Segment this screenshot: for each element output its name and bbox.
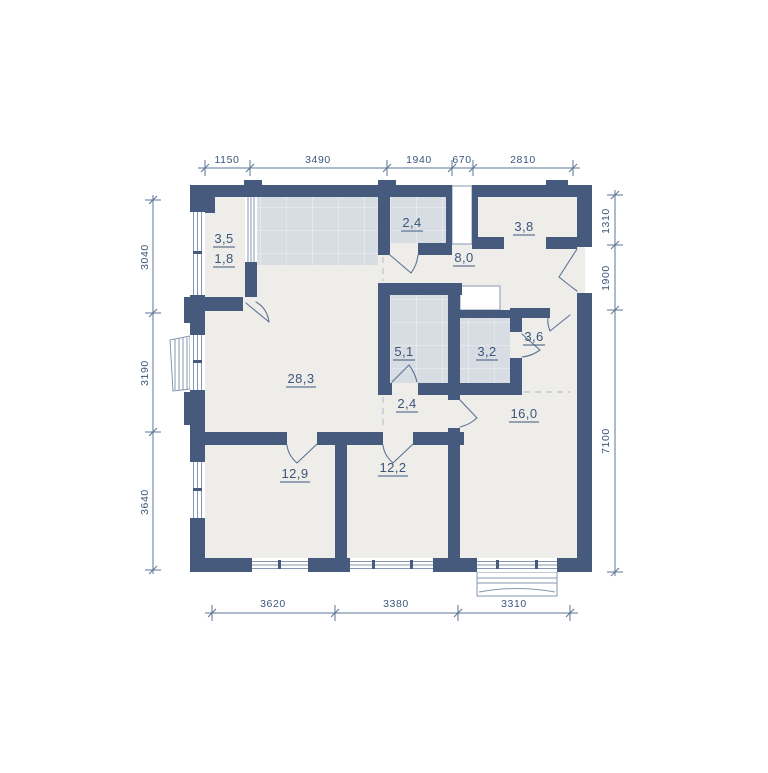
shaft-middle	[460, 286, 500, 310]
dim-top-2: 1940	[406, 154, 432, 166]
room-label-bedroom-left: 12,9	[282, 466, 309, 481]
dim-bottom-2: 3310	[501, 598, 527, 610]
dim-top-3: 670	[452, 154, 471, 166]
room-label-hallway: 8,0	[454, 250, 473, 265]
dim-left-1: 3190	[139, 360, 151, 386]
dimension-chain-left: 3040 3190 3640	[139, 195, 161, 574]
room-label-inner-hall: 2,4	[397, 396, 416, 411]
window-bottom-bedroom-left	[252, 558, 308, 572]
room-label-shower-room: 3,2	[477, 344, 496, 359]
balcony-left	[170, 336, 190, 391]
dim-top-0: 1150	[215, 154, 240, 166]
room-label-wc: 2,4	[402, 215, 421, 230]
room-label-loggia-reduced: 1,8	[214, 251, 233, 266]
dim-bottom-1: 3380	[383, 598, 409, 610]
dimension-chain-bottom: 3620 3380 3310	[205, 598, 578, 621]
dimension-chain-right: 1310 1900 7100	[600, 190, 623, 576]
shaft-top	[452, 186, 472, 244]
dimension-chain-top: 1150 3490 1940 670 2810	[198, 154, 580, 176]
window-left-bedroom	[190, 462, 205, 518]
dim-bottom-0: 3620	[260, 598, 286, 610]
window-left-loggia	[190, 212, 205, 295]
dim-right-2: 7100	[600, 428, 612, 454]
balcony-bottom	[477, 572, 557, 596]
floor-plan-canvas: 3,5 1,8 2,4 3,8 8,0 5,1 3,2 3,6 28,3 2,4…	[0, 0, 768, 768]
window-bottom-bedroom-right	[477, 558, 557, 572]
window-left-living	[190, 335, 205, 390]
dim-top-1: 3490	[305, 154, 331, 166]
tile-floor-bathroom	[390, 295, 448, 383]
tile-floor-kitchen	[250, 197, 378, 265]
room-label-bedroom-right: 16,0	[511, 406, 538, 421]
window-bottom-bedroom-middle	[350, 558, 433, 572]
floor-plan-page: 3,5 1,8 2,4 3,8 8,0 5,1 3,2 3,6 28,3 2,4…	[0, 0, 768, 768]
dim-top-4: 2810	[510, 154, 536, 166]
room-label-kitchen-living: 28,3	[288, 371, 315, 386]
dim-right-1: 1900	[600, 265, 612, 291]
dim-left-2: 3640	[139, 489, 151, 515]
room-label-loggia-total: 3,5	[214, 231, 233, 246]
room-label-wardrobe: 3,8	[514, 219, 533, 234]
dim-right-0: 1310	[600, 208, 612, 234]
dim-left-0: 3040	[139, 244, 151, 270]
glazed-partition-loggia	[245, 197, 257, 262]
room-label-bedroom-middle: 12,2	[380, 460, 407, 475]
room-label-bathroom: 5,1	[394, 344, 413, 359]
room-label-corridor: 3,6	[524, 329, 543, 344]
